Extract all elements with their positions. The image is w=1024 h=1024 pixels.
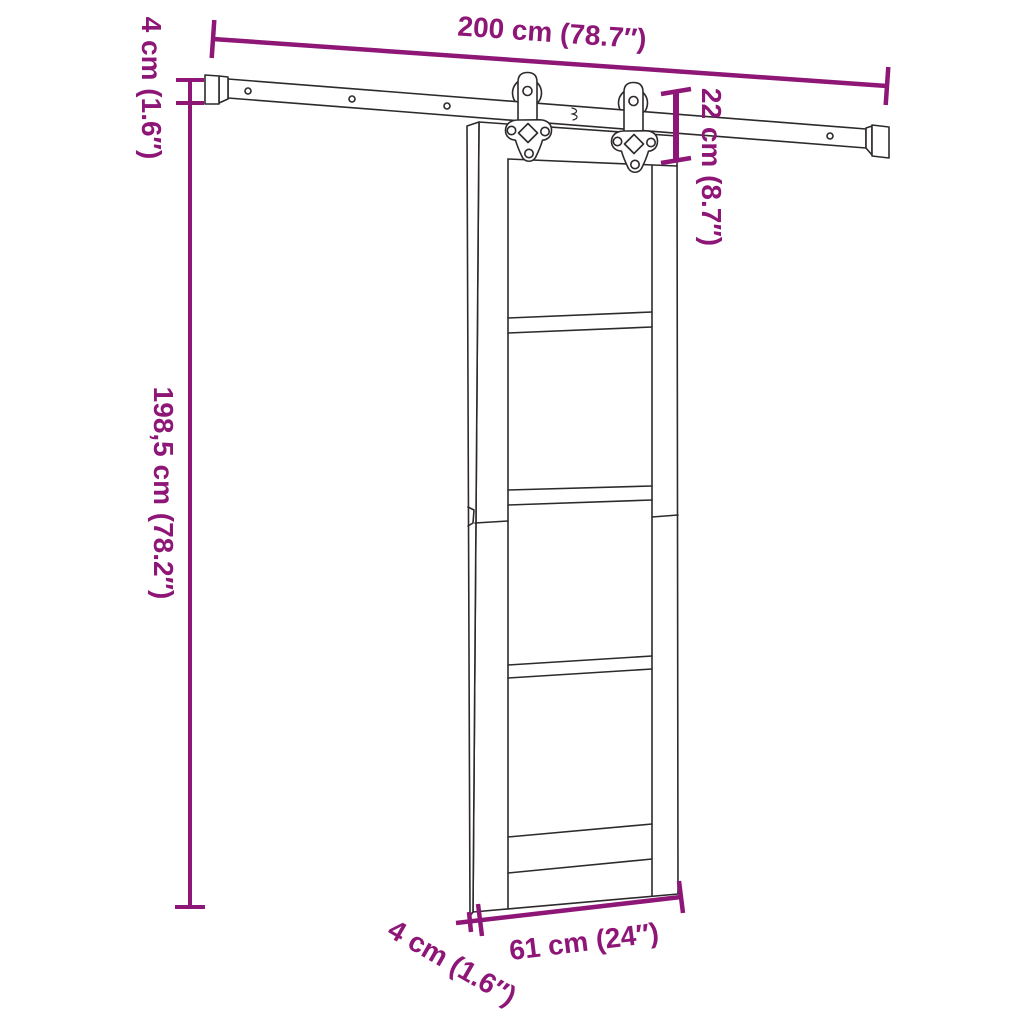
dim-rail-length-cap [212,20,215,58]
left-plate-bolt [541,127,549,135]
dimension-diagram: 200 cm (78.7″) 4 cm (1.6″) 22 cm (8.7″) … [0,0,1024,1024]
rail-height-label: 4 cm (1.6″) [134,8,168,168]
door-height-label: 198,5 cm (78.2″) [146,383,180,603]
rail-right-cap [872,125,889,158]
left-plate-bolt [507,126,515,134]
dim-rail-length-cap [886,67,889,105]
dim-door-width-cap [679,881,683,913]
rail-hole [349,96,355,102]
right-plate-bolt [613,137,621,145]
rail-right-ridge [866,126,872,155]
drop-height-label: 22 cm (8.7″) [694,82,728,252]
rail-hole [245,88,251,94]
rail-hole [444,103,450,109]
right-plate-bolt [631,160,639,168]
door-front-face [473,122,678,912]
rail-hole [827,133,833,139]
right-axle-bolt-icon [629,97,638,106]
rail-left-ridge [219,76,228,103]
left-axle-bolt-icon [523,87,532,96]
rail-left-cap [205,75,219,104]
right-plate-bolt [647,138,655,146]
door [467,122,678,916]
left-plate-bolt [525,149,533,157]
dim-drop-height-cap [661,89,691,94]
dim-door-thickness-cap [469,912,471,932]
